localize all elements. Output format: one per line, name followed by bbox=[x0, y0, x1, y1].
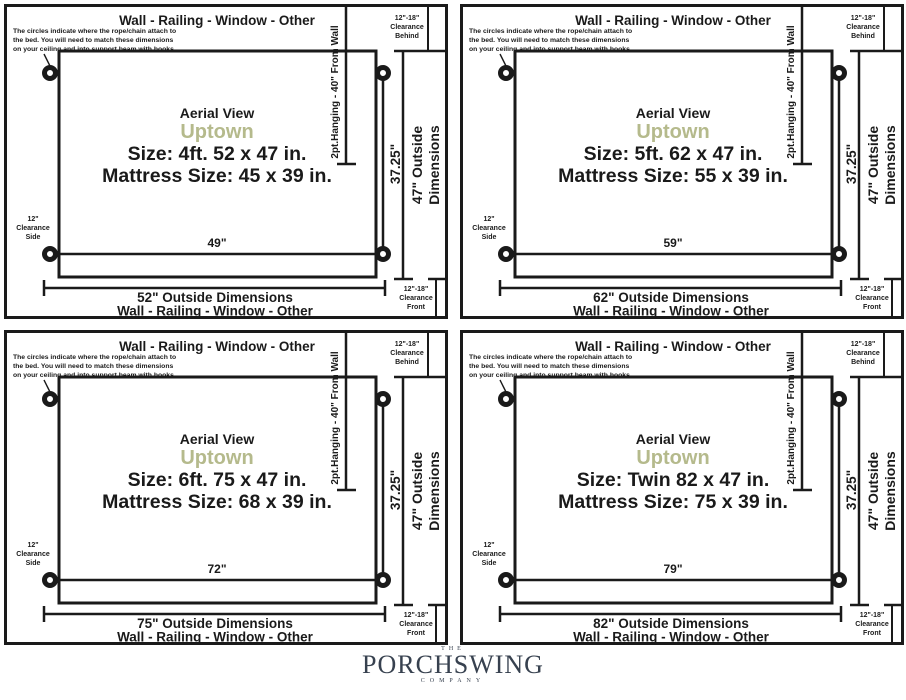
note-leader-line bbox=[44, 380, 50, 392]
clearance-side-label-1: Clearance bbox=[16, 551, 50, 558]
size-panel: Wall - Railing - Window - Other The circ… bbox=[4, 330, 448, 645]
aerial-view-label: Aerial View bbox=[180, 105, 255, 121]
size-panel: Wall - Railing - Window - Other The circ… bbox=[460, 330, 904, 645]
note-line-1: The circles indicate where the rope/chai… bbox=[469, 354, 632, 361]
hang-width-value: 49" bbox=[207, 236, 226, 250]
clearance-side-value: 12" bbox=[27, 216, 38, 223]
clearance-behind-label-2: Behind bbox=[851, 359, 875, 366]
outside-depth-label-1: 47" Outside bbox=[865, 126, 881, 204]
note-line-2: the bed. You will need to match these di… bbox=[13, 363, 173, 370]
size-panel: Wall - Railing - Window - Other The circ… bbox=[4, 4, 448, 319]
clearance-side-value: 12" bbox=[27, 542, 38, 549]
wall-bottom-label: Wall - Railing - Window - Other bbox=[573, 630, 770, 645]
clearance-side-label-2: Side bbox=[26, 560, 41, 567]
clearance-front-label-2: Front bbox=[863, 304, 882, 311]
hanging-point-circle bbox=[501, 575, 512, 586]
clearance-behind-value: 12"-18" bbox=[851, 15, 876, 22]
outside-depth-label-1: 47" Outside bbox=[409, 452, 425, 530]
hanging-offset-label: 2pt.Hanging - 40" From Wall bbox=[330, 351, 341, 484]
clearance-side-label-1: Clearance bbox=[472, 551, 506, 558]
aerial-view-label: Aerial View bbox=[636, 431, 711, 447]
outside-depth-label-1: 47" Outside bbox=[865, 452, 881, 530]
mattress-size-value: Mattress Size: 55 x 39 in. bbox=[558, 165, 788, 187]
logo-company-text: COMPANY bbox=[0, 678, 906, 684]
clearance-front-label-2: Front bbox=[407, 630, 426, 637]
hanging-point-circle bbox=[501, 394, 512, 405]
outside-depth-label-2: Dimensions bbox=[426, 451, 442, 531]
clearance-behind-label-2: Behind bbox=[395, 359, 419, 366]
outside-depth-label-2: Dimensions bbox=[882, 125, 898, 205]
outside-depth-label-2: Dimensions bbox=[882, 451, 898, 531]
logo-brand-text: PORCHSWING bbox=[0, 652, 906, 678]
hanging-point-circle bbox=[45, 68, 56, 79]
hanging-point-circle bbox=[378, 249, 389, 260]
clearance-front-label-1: Clearance bbox=[399, 295, 433, 302]
hanging-point-circle bbox=[45, 575, 56, 586]
panel-diagram: Wall - Railing - Window - Other The circ… bbox=[460, 330, 904, 645]
hanging-point-circle bbox=[501, 249, 512, 260]
hanging-point-circle bbox=[834, 394, 845, 405]
clearance-front-value: 12"-18" bbox=[404, 612, 429, 619]
wall-bottom-label: Wall - Railing - Window - Other bbox=[117, 630, 314, 645]
hang-spacing-value: 37.25" bbox=[388, 470, 403, 510]
hang-spacing-value: 37.25" bbox=[844, 470, 859, 510]
hang-spacing-value: 37.25" bbox=[388, 144, 403, 184]
clearance-behind-label-1: Clearance bbox=[390, 24, 424, 31]
clearance-side-value: 12" bbox=[483, 216, 494, 223]
company-logo: THE PORCHSWING COMPANY bbox=[0, 646, 906, 684]
size-panel: Wall - Railing - Window - Other The circ… bbox=[460, 4, 904, 319]
hanging-point-circle bbox=[501, 68, 512, 79]
clearance-front-label-1: Clearance bbox=[399, 621, 433, 628]
wall-top-label: Wall - Railing - Window - Other bbox=[575, 13, 772, 28]
clearance-front-label-2: Front bbox=[863, 630, 882, 637]
hanging-point-circle bbox=[45, 249, 56, 260]
hanging-offset-label: 2pt.Hanging - 40" From Wall bbox=[786, 25, 797, 158]
size-value: Size: 6ft. 75 x 47 in. bbox=[128, 469, 307, 491]
hang-width-value: 79" bbox=[663, 562, 682, 576]
clearance-side-label-2: Side bbox=[26, 234, 41, 241]
clearance-behind-label-1: Clearance bbox=[846, 350, 880, 357]
clearance-front-label-1: Clearance bbox=[855, 621, 889, 628]
clearance-side-label-1: Clearance bbox=[16, 225, 50, 232]
clearance-side-value: 12" bbox=[483, 542, 494, 549]
panel-diagram: Wall - Railing - Window - Other The circ… bbox=[4, 4, 448, 319]
hanging-point-circle bbox=[834, 249, 845, 260]
clearance-front-label-1: Clearance bbox=[855, 295, 889, 302]
panel-diagram: Wall - Railing - Window - Other The circ… bbox=[460, 4, 904, 319]
outside-depth-label-2: Dimensions bbox=[426, 125, 442, 205]
note-leader-line bbox=[44, 54, 50, 66]
model-name: Uptown bbox=[180, 121, 253, 143]
size-panels-grid: Wall - Railing - Window - Other The circ… bbox=[4, 4, 904, 645]
mattress-size-value: Mattress Size: 45 x 39 in. bbox=[102, 165, 332, 187]
hanging-point-circle bbox=[834, 68, 845, 79]
model-name: Uptown bbox=[180, 447, 253, 469]
clearance-side-label-2: Side bbox=[482, 560, 497, 567]
hanging-point-circle bbox=[834, 575, 845, 586]
note-line-2: the bed. You will need to match these di… bbox=[13, 37, 173, 44]
hanging-point-circle bbox=[378, 68, 389, 79]
hanging-offset-label: 2pt.Hanging - 40" From Wall bbox=[786, 351, 797, 484]
clearance-front-value: 12"-18" bbox=[860, 286, 885, 293]
clearance-side-label-1: Clearance bbox=[472, 225, 506, 232]
clearance-behind-label-1: Clearance bbox=[846, 24, 880, 31]
note-leader-line bbox=[500, 54, 506, 66]
size-value: Size: Twin 82 x 47 in. bbox=[577, 469, 770, 491]
panel-diagram: Wall - Railing - Window - Other The circ… bbox=[4, 330, 448, 645]
note-line-1: The circles indicate where the rope/chai… bbox=[13, 28, 176, 35]
clearance-behind-value: 12"-18" bbox=[851, 341, 876, 348]
clearance-behind-label-1: Clearance bbox=[390, 350, 424, 357]
clearance-behind-label-2: Behind bbox=[851, 33, 875, 40]
clearance-behind-value: 12"-18" bbox=[395, 341, 420, 348]
note-line-1: The circles indicate where the rope/chai… bbox=[13, 354, 176, 361]
clearance-side-label-2: Side bbox=[482, 234, 497, 241]
note-line-1: The circles indicate where the rope/chai… bbox=[469, 28, 632, 35]
hanging-point-circle bbox=[45, 394, 56, 405]
hanging-offset-label: 2pt.Hanging - 40" From Wall bbox=[330, 25, 341, 158]
aerial-view-label: Aerial View bbox=[180, 431, 255, 447]
clearance-front-value: 12"-18" bbox=[404, 286, 429, 293]
aerial-view-label: Aerial View bbox=[636, 105, 711, 121]
hang-spacing-value: 37.25" bbox=[844, 144, 859, 184]
size-value: Size: 4ft. 52 x 47 in. bbox=[128, 143, 307, 165]
hanging-point-circle bbox=[378, 394, 389, 405]
hanging-point-circle bbox=[378, 575, 389, 586]
clearance-behind-value: 12"-18" bbox=[395, 15, 420, 22]
clearance-front-label-2: Front bbox=[407, 304, 426, 311]
mattress-size-value: Mattress Size: 68 x 39 in. bbox=[102, 491, 332, 513]
clearance-behind-label-2: Behind bbox=[395, 33, 419, 40]
hang-width-value: 72" bbox=[207, 562, 226, 576]
note-line-2: the bed. You will need to match these di… bbox=[469, 37, 629, 44]
outside-depth-label-1: 47" Outside bbox=[409, 126, 425, 204]
model-name: Uptown bbox=[636, 121, 709, 143]
wall-top-label: Wall - Railing - Window - Other bbox=[575, 339, 772, 354]
note-leader-line bbox=[500, 380, 506, 392]
clearance-front-value: 12"-18" bbox=[860, 612, 885, 619]
wall-top-label: Wall - Railing - Window - Other bbox=[119, 339, 316, 354]
note-line-2: the bed. You will need to match these di… bbox=[469, 363, 629, 370]
mattress-size-value: Mattress Size: 75 x 39 in. bbox=[558, 491, 788, 513]
size-value: Size: 5ft. 62 x 47 in. bbox=[584, 143, 763, 165]
hang-width-value: 59" bbox=[663, 236, 682, 250]
model-name: Uptown bbox=[636, 447, 709, 469]
wall-bottom-label: Wall - Railing - Window - Other bbox=[117, 304, 314, 319]
wall-bottom-label: Wall - Railing - Window - Other bbox=[573, 304, 770, 319]
wall-top-label: Wall - Railing - Window - Other bbox=[119, 13, 316, 28]
